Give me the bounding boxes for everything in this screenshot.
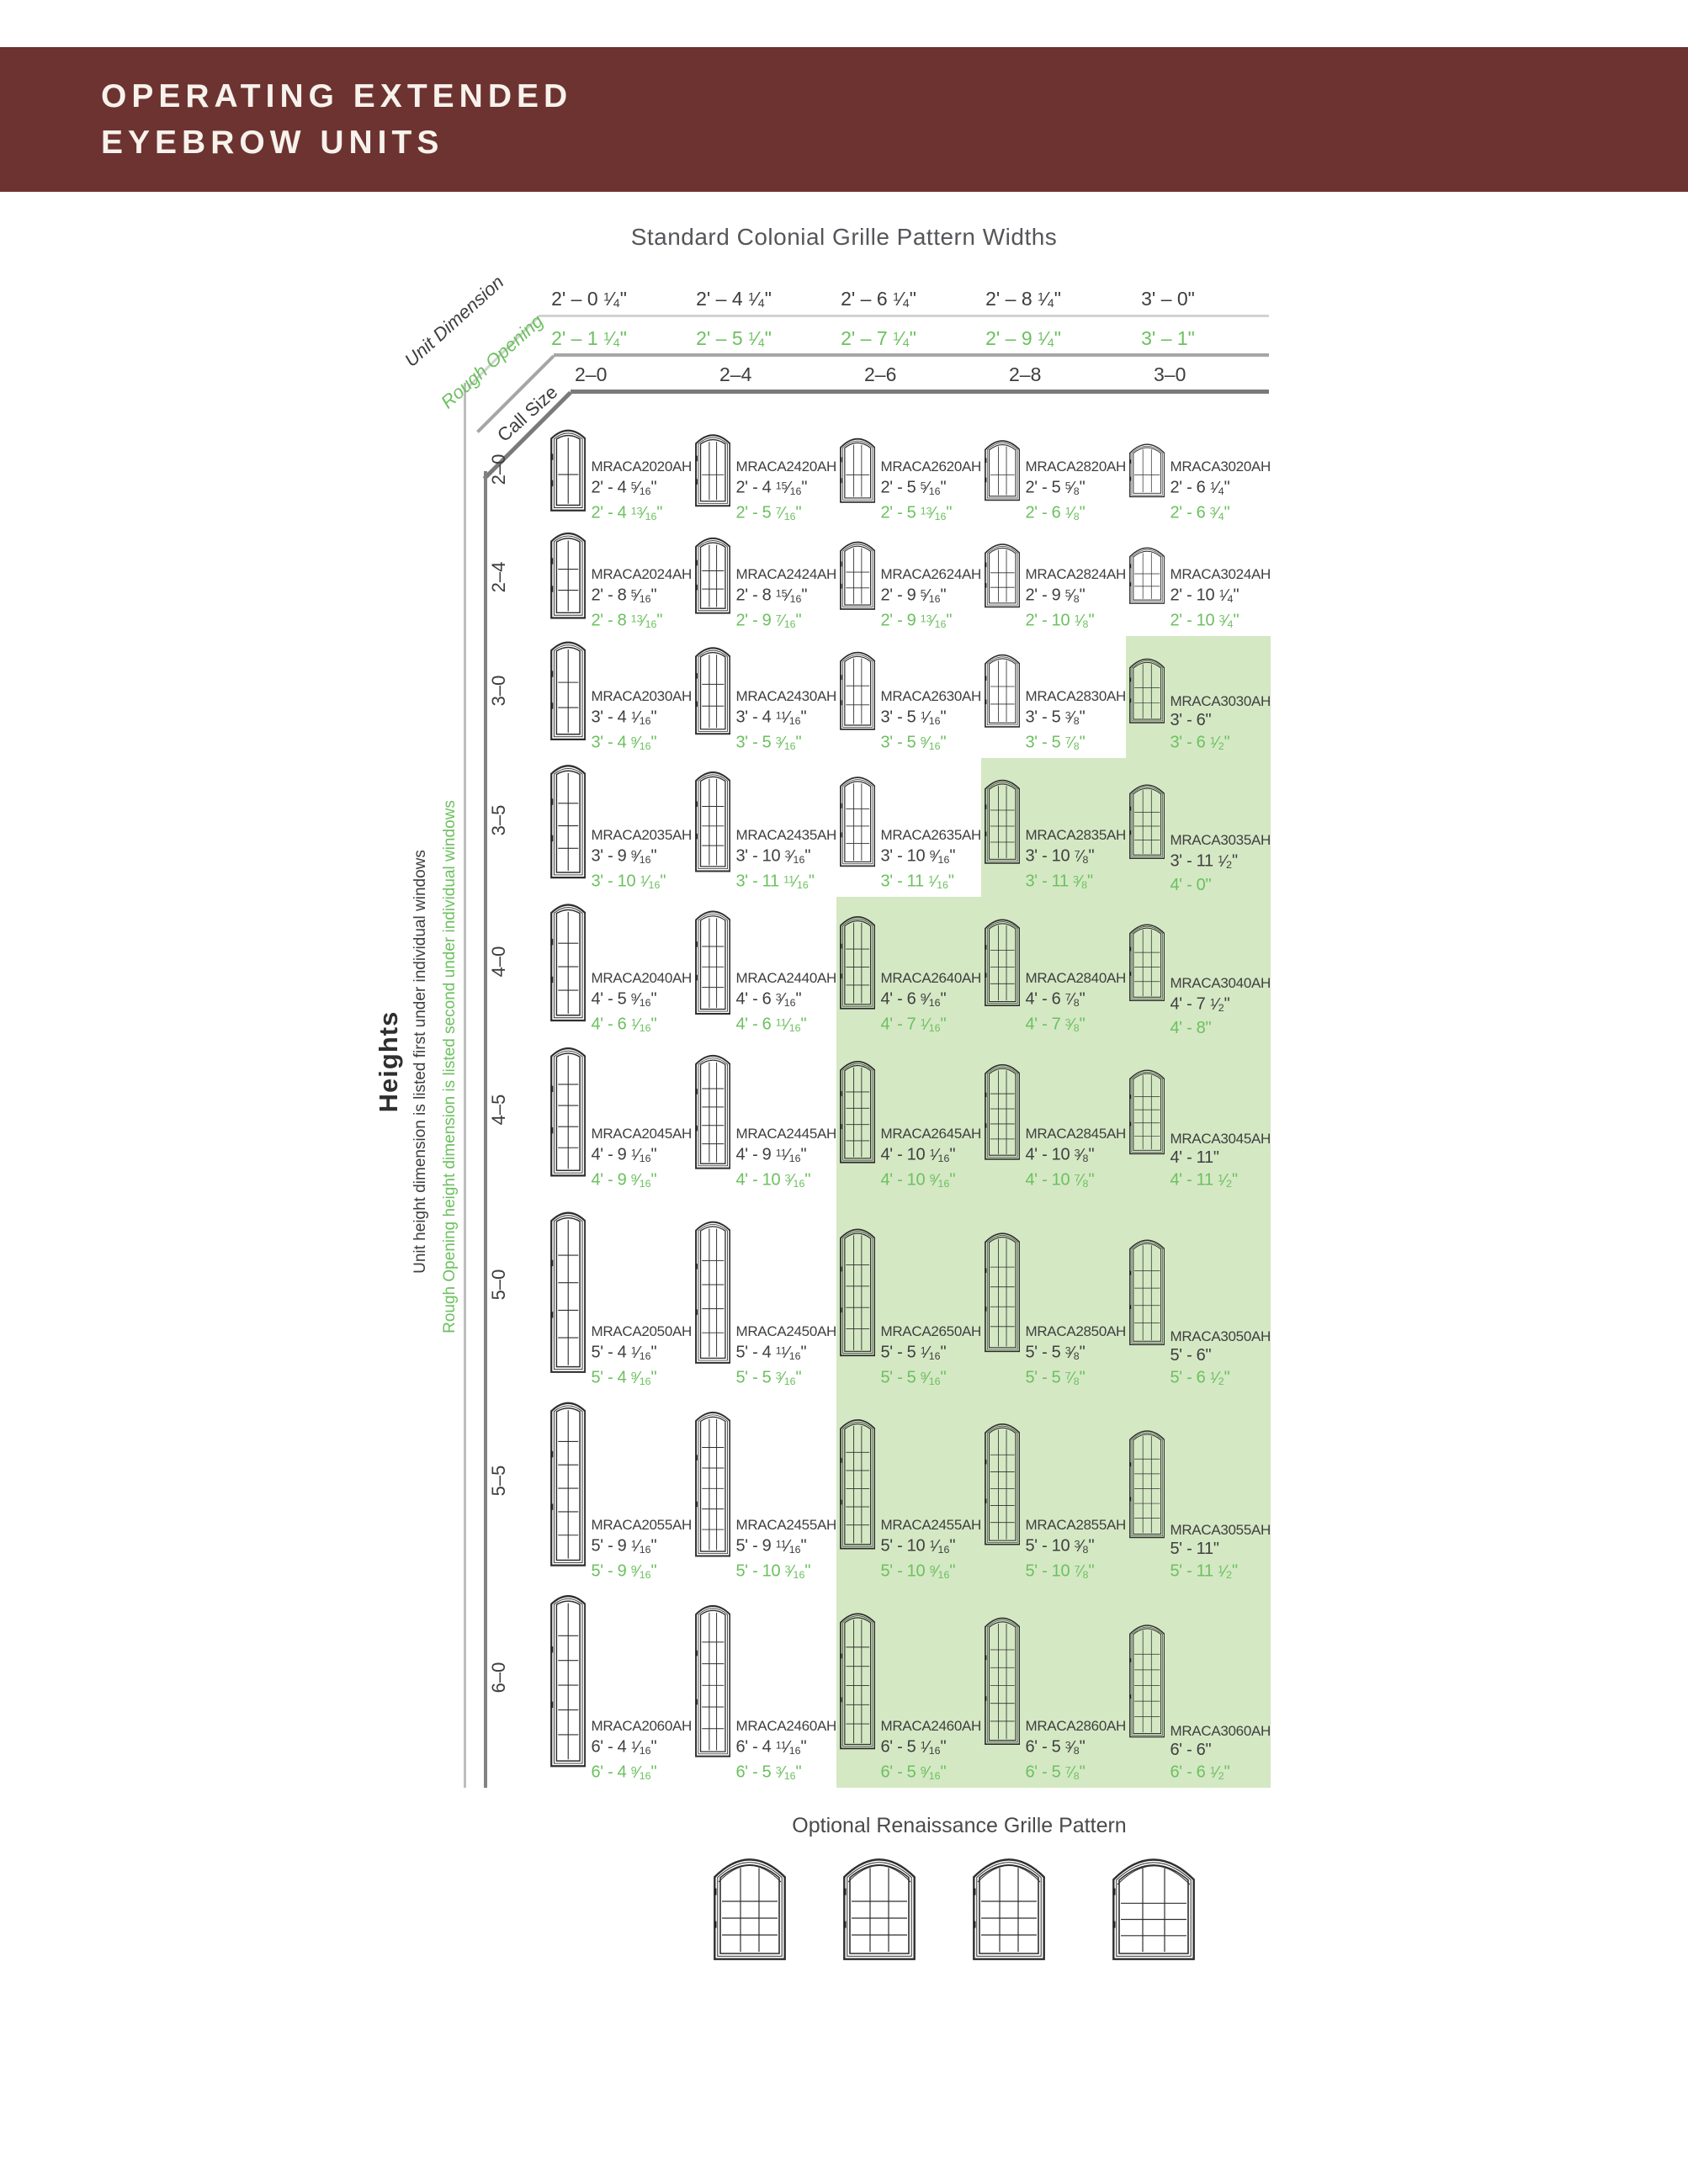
model-number: MRACA2055AH xyxy=(591,1516,692,1534)
table-cell: MRACA2455AH5' - 10 1⁄16"5' - 10 9⁄16" xyxy=(836,1393,981,1587)
unit-dimension: 6' - 5 3⁄8" xyxy=(1025,1735,1126,1761)
model-number: MRACA2020AH xyxy=(591,458,692,475)
unit-dimension: 4' - 7 1⁄2" xyxy=(1170,992,1271,1018)
table-cell: MRACA3040AH4' - 7 1⁄2"4' - 8" xyxy=(1126,897,1271,1040)
window-illustration xyxy=(985,426,1020,515)
table-cell: MRACA2860AH6' - 5 3⁄8"6' - 5 7⁄8" xyxy=(981,1587,1126,1788)
model-number: MRACA3040AH xyxy=(1170,974,1271,992)
unit-dimension: 6' - 4 1⁄16" xyxy=(591,1735,692,1761)
unit-dimension: 3' - 11 1⁄2" xyxy=(1170,849,1271,875)
window-illustration xyxy=(840,1205,875,1380)
table-cell: MRACA2460AH6' - 5 1⁄16"6' - 5 9⁄16" xyxy=(836,1587,981,1788)
unit-dimension: 5' - 5 1⁄16" xyxy=(880,1340,981,1366)
unit-dimension: 5' - 10 1⁄16" xyxy=(880,1534,981,1560)
page-title-line2: EYEBROW UNITS xyxy=(101,119,1688,166)
rough-opening: 6' - 5 9⁄16" xyxy=(880,1760,981,1786)
rough-opening: 6' - 6 1⁄2" xyxy=(1170,1760,1271,1786)
model-number: MRACA2824AH xyxy=(1025,565,1126,583)
table-cell: MRACA2855AH5' - 10 3⁄8"5' - 10 7⁄8" xyxy=(981,1393,1126,1587)
model-number: MRACA2424AH xyxy=(735,565,836,583)
table-cell: MRACA3030AH3' - 6"3' - 6 1⁄2" xyxy=(1126,636,1271,758)
rough-opening: 5' - 6 1⁄2" xyxy=(1170,1365,1271,1392)
height-call-size-value: 4–5 xyxy=(488,1095,510,1126)
table-cell: MRACA2024AH2' - 8 5⁄16"2' - 8 13⁄16" xyxy=(547,528,692,636)
window-illustration xyxy=(973,1858,1045,1960)
cell-text: MRACA2840AH4' - 6 7⁄8"4' - 7 3⁄8" xyxy=(1025,969,1126,1038)
unit-dimension: 5' - 10 3⁄8" xyxy=(1025,1534,1126,1560)
unit-dimension: 4' - 5 9⁄16" xyxy=(591,987,692,1013)
window-illustration xyxy=(550,899,586,1026)
cell-text: MRACA2624AH2' - 9 5⁄16"2' - 9 13⁄16" xyxy=(880,565,981,634)
table-cell: MRACA2060AH6' - 4 1⁄16"6' - 4 9⁄16" xyxy=(547,1587,692,1788)
rough-opening: 5' - 9 9⁄16" xyxy=(591,1559,692,1585)
unit-dimension: 4' - 9 1⁄16" xyxy=(591,1142,692,1169)
table-cell: MRACA2424AH2' - 8 15⁄16"2' - 9 7⁄16" xyxy=(692,528,836,636)
window-illustration xyxy=(840,899,875,1026)
cell-text: MRACA2640AH4' - 6 9⁄16"4' - 7 1⁄16" xyxy=(880,969,981,1038)
unit-dimension: 4' - 10 1⁄16" xyxy=(880,1142,981,1169)
rough-opening: 2' - 9 7⁄16" xyxy=(735,608,836,634)
table-cell: MRACA2020AH2' - 4 5⁄16"2' - 4 13⁄16" xyxy=(547,421,692,528)
table-cell: MRACA3035AH3' - 11 1⁄2"4' - 0" xyxy=(1126,758,1271,897)
width-unit-dimension-value: 2' – 4 1⁄4" xyxy=(671,288,797,310)
unit-dimension: 3' - 6" xyxy=(1170,710,1271,730)
window-illustration xyxy=(985,528,1020,623)
window-illustration xyxy=(843,1858,916,1960)
unit-dimension: 5' - 6" xyxy=(1170,1345,1271,1365)
unit-dimension: 6' - 5 1⁄16" xyxy=(880,1735,981,1761)
unit-dimension: 2' - 5 5⁄16" xyxy=(880,475,981,501)
width-call-size-value: 2–6 xyxy=(864,363,896,386)
table-cell: MRACA2624AH2' - 9 5⁄16"2' - 9 13⁄16" xyxy=(836,528,981,636)
rough-opening: 4' - 7 3⁄8" xyxy=(1025,1012,1126,1038)
unit-dimension: 2' - 8 15⁄16" xyxy=(735,583,836,609)
unit-dimension: 3' - 5 3⁄8" xyxy=(1025,705,1126,731)
model-number: MRACA2845AH xyxy=(1025,1125,1126,1142)
table-cell: MRACA2645AH4' - 10 1⁄16"4' - 10 9⁄16" xyxy=(836,1040,981,1195)
model-number: MRACA3030AH xyxy=(1170,692,1271,710)
footer-title: Optional Renaissance Grille Pattern xyxy=(539,1814,1380,1838)
table-cell: MRACA2430AH3' - 4 11⁄16"3' - 5 3⁄16" xyxy=(692,636,836,758)
table-cell: MRACA2640AH4' - 6 9⁄16"4' - 7 1⁄16" xyxy=(836,897,981,1040)
table-cell: MRACA2824AH2' - 9 5⁄8"2' - 10 1⁄8" xyxy=(981,528,1126,636)
window-illustration xyxy=(840,528,875,623)
rough-opening: 4' - 10 9⁄16" xyxy=(880,1168,981,1194)
window-illustration xyxy=(985,1395,1020,1573)
window-illustration xyxy=(1129,760,1165,883)
table-cell: MRACA3055AH5' - 11"5' - 11 1⁄2" xyxy=(1126,1393,1271,1587)
cell-text: MRACA3055AH5' - 11"5' - 11 1⁄2" xyxy=(1170,1521,1271,1585)
unit-dimension: 4' - 9 11⁄16" xyxy=(735,1142,836,1169)
cell-text: MRACA2855AH5' - 10 3⁄8"5' - 10 7⁄8" xyxy=(1025,1516,1126,1585)
model-number: MRACA2624AH xyxy=(880,565,981,583)
height-call-size-value: 4–0 xyxy=(488,946,510,978)
model-number: MRACA2855AH xyxy=(1025,1516,1126,1534)
model-number: MRACA2820AH xyxy=(1025,458,1126,475)
cell-text: MRACA2060AH6' - 4 1⁄16"6' - 4 9⁄16" xyxy=(591,1717,692,1786)
model-number: MRACA2455AH xyxy=(735,1516,836,1534)
model-number: MRACA2460AH xyxy=(735,1717,836,1735)
unit-height-note: Unit height dimension is listed first un… xyxy=(411,850,430,1274)
table-cell: MRACA2045AH4' - 9 1⁄16"4' - 9 9⁄16" xyxy=(547,1040,692,1195)
table-cell: MRACA3020AH2' - 6 1⁄4"2' - 6 3⁄4" xyxy=(1126,421,1271,528)
rough-opening: 3' - 10 1⁄16" xyxy=(591,869,692,895)
table-cell: MRACA3045AH4' - 11"4' - 11 1⁄2" xyxy=(1126,1040,1271,1195)
height-call-size-value: 6–0 xyxy=(488,1662,510,1694)
window-illustration xyxy=(550,426,586,515)
window-illustration xyxy=(985,899,1020,1026)
height-axis-line-2 xyxy=(484,471,487,1788)
rough-opening: 2' - 9 13⁄16" xyxy=(880,608,981,634)
unit-dimension: 6' - 4 11⁄16" xyxy=(735,1735,836,1761)
height-call-size-value: 2–4 xyxy=(488,562,510,593)
cell-text: MRACA2030AH3' - 4 1⁄16"3' - 4 9⁄16" xyxy=(591,687,692,756)
cell-text: MRACA2635AH3' - 10 9⁄16"3' - 11 1⁄16" xyxy=(880,826,981,895)
model-number: MRACA2440AH xyxy=(735,969,836,987)
rough-opening: 3' - 11 11⁄16" xyxy=(735,869,836,895)
height-call-size-value: 2–0 xyxy=(488,454,510,485)
height-call-size-value: 3–0 xyxy=(488,676,510,707)
width-axis-line-3 xyxy=(571,390,1269,394)
model-number: MRACA2835AH xyxy=(1025,826,1126,844)
rough-opening: 5' - 10 3⁄16" xyxy=(735,1559,836,1585)
rough-opening: 4' - 10 7⁄8" xyxy=(1025,1168,1126,1194)
window-illustration xyxy=(840,1042,875,1182)
cell-text: MRACA3030AH3' - 6"3' - 6 1⁄2" xyxy=(1170,692,1271,756)
table-cell: MRACA2055AH5' - 9 1⁄16"5' - 9 9⁄16" xyxy=(547,1393,692,1587)
table-cell: MRACA2455AH5' - 9 11⁄16"5' - 10 3⁄16" xyxy=(692,1393,836,1587)
rough-opening: 6' - 5 3⁄16" xyxy=(735,1760,836,1786)
cell-text: MRACA2055AH5' - 9 1⁄16"5' - 9 9⁄16" xyxy=(591,1516,692,1585)
rough-opening: 3' - 5 7⁄8" xyxy=(1025,730,1126,756)
table-cell: MRACA2630AH3' - 5 1⁄16"3' - 5 9⁄16" xyxy=(836,636,981,758)
cell-text: MRACA2455AH5' - 10 1⁄16"5' - 10 9⁄16" xyxy=(880,1516,981,1585)
table-cell: MRACA2840AH4' - 6 7⁄8"4' - 7 3⁄8" xyxy=(981,897,1126,1040)
table-cell: MRACA2435AH3' - 10 3⁄16"3' - 11 11⁄16" xyxy=(692,758,836,897)
unit-dimension: 3' - 10 9⁄16" xyxy=(880,844,981,870)
model-number: MRACA2455AH xyxy=(880,1516,981,1534)
window-illustration xyxy=(840,1395,875,1573)
window-illustration xyxy=(1129,1588,1165,1774)
window-illustration xyxy=(840,426,875,515)
model-number: MRACA3055AH xyxy=(1170,1521,1271,1539)
rough-opening: 5' - 5 7⁄8" xyxy=(1025,1365,1126,1392)
window-illustration xyxy=(985,1588,1020,1774)
unit-dimension: 5' - 5 3⁄8" xyxy=(1025,1340,1126,1366)
model-number: MRACA2450AH xyxy=(735,1323,836,1340)
unit-dimension: 4' - 6 7⁄8" xyxy=(1025,987,1126,1013)
model-number: MRACA2435AH xyxy=(735,826,836,844)
cell-text: MRACA2820AH2' - 5 5⁄8"2' - 6 1⁄8" xyxy=(1025,458,1126,527)
rough-opening: 3' - 11 1⁄16" xyxy=(880,869,981,895)
window-illustration xyxy=(1112,1858,1195,1960)
unit-dimension: 2' - 5 5⁄8" xyxy=(1025,475,1126,501)
window-illustration xyxy=(985,1205,1020,1380)
renaissance-window xyxy=(1112,1858,1195,1960)
table-cell: MRACA3060AH6' - 6"6' - 6 1⁄2" xyxy=(1126,1587,1271,1788)
cell-text: MRACA2435AH3' - 10 3⁄16"3' - 11 11⁄16" xyxy=(735,826,836,895)
window-illustration xyxy=(695,426,730,515)
width-rough-opening-value: 2' – 5 1⁄4" xyxy=(671,327,797,350)
cell-text: MRACA2650AH5' - 5 1⁄16"5' - 5 9⁄16" xyxy=(880,1323,981,1392)
table-cell: MRACA2445AH4' - 9 11⁄16"4' - 10 3⁄16" xyxy=(692,1040,836,1195)
table-cell: MRACA2050AH5' - 4 1⁄16"5' - 4 9⁄16" xyxy=(547,1195,692,1393)
unit-dimension: 2' - 9 5⁄16" xyxy=(880,583,981,609)
model-number: MRACA2420AH xyxy=(735,458,836,475)
unit-dimension: 2' - 9 5⁄8" xyxy=(1025,583,1126,609)
rough-opening: 5' - 10 7⁄8" xyxy=(1025,1559,1126,1585)
cell-text: MRACA2455AH5' - 9 11⁄16"5' - 10 3⁄16" xyxy=(735,1516,836,1585)
rough-opening: 5' - 5 9⁄16" xyxy=(880,1365,981,1392)
cell-text: MRACA2050AH5' - 4 1⁄16"5' - 4 9⁄16" xyxy=(591,1323,692,1392)
rough-opening: 3' - 5 9⁄16" xyxy=(880,730,981,756)
rough-opening: 2' - 5 7⁄16" xyxy=(735,501,836,527)
unit-dimension: 4' - 11" xyxy=(1170,1148,1271,1168)
model-number: MRACA3050AH xyxy=(1170,1328,1271,1345)
window-illustration xyxy=(550,637,586,745)
table-cell: MRACA2835AH3' - 10 7⁄8"3' - 11 3⁄8" xyxy=(981,758,1126,897)
model-number: MRACA2830AH xyxy=(1025,687,1126,705)
model-number: MRACA2060AH xyxy=(591,1717,692,1735)
unit-dimension: 2' - 10 1⁄4" xyxy=(1170,583,1271,609)
window-illustration xyxy=(550,1205,586,1380)
table-cell: MRACA2450AH5' - 4 11⁄16"5' - 5 3⁄16" xyxy=(692,1195,836,1393)
cell-text: MRACA3020AH2' - 6 1⁄4"2' - 6 3⁄4" xyxy=(1170,458,1271,527)
cell-text: MRACA2460AH6' - 5 1⁄16"6' - 5 9⁄16" xyxy=(880,1717,981,1786)
unit-dimension: 5' - 11" xyxy=(1170,1539,1271,1559)
rough-opening: 2' - 6 1⁄8" xyxy=(1025,501,1126,527)
unit-dimension: 3' - 10 3⁄16" xyxy=(735,844,836,870)
window-illustration xyxy=(695,1588,730,1774)
rough-opening: 2' - 6 3⁄4" xyxy=(1170,501,1271,527)
table-cell: MRACA2460AH6' - 4 11⁄16"6' - 5 3⁄16" xyxy=(692,1587,836,1788)
width-unit-dimension-value: 2' – 6 1⁄4" xyxy=(815,288,942,310)
rough-opening: 2' - 5 13⁄16" xyxy=(880,501,981,527)
rough-opening: 4' - 6 1⁄16" xyxy=(591,1012,692,1038)
table-cell: MRACA2420AH2' - 4 15⁄16"2' - 5 7⁄16" xyxy=(692,421,836,528)
window-illustration xyxy=(550,1395,586,1573)
unit-dimension: 4' - 6 9⁄16" xyxy=(880,987,981,1013)
rough-opening: 5' - 5 3⁄16" xyxy=(735,1365,836,1392)
table-cell: MRACA3050AH5' - 6"5' - 6 1⁄2" xyxy=(1126,1195,1271,1393)
renaissance-window xyxy=(973,1858,1045,1960)
rough-opening: 6' - 4 9⁄16" xyxy=(591,1760,692,1786)
unit-dimension: 4' - 10 3⁄8" xyxy=(1025,1142,1126,1169)
table-cell: MRACA2040AH4' - 5 9⁄16"4' - 6 1⁄16" xyxy=(547,897,692,1040)
rough-opening: 2' - 4 13⁄16" xyxy=(591,501,692,527)
rough-opening: 5' - 4 9⁄16" xyxy=(591,1365,692,1392)
unit-dimension: 6' - 6" xyxy=(1170,1740,1271,1760)
window-illustration xyxy=(1129,1205,1165,1380)
cell-text: MRACA2830AH3' - 5 3⁄8"3' - 5 7⁄8" xyxy=(1025,687,1126,756)
width-unit-dimension-value: 2' – 0 1⁄4" xyxy=(526,288,652,310)
model-number: MRACA2640AH xyxy=(880,969,981,987)
window-illustration xyxy=(550,1042,586,1182)
window-illustration xyxy=(840,760,875,883)
table-cell: MRACA2850AH5' - 5 3⁄8"5' - 5 7⁄8" xyxy=(981,1195,1126,1393)
window-illustration xyxy=(1129,899,1165,1026)
width-unit-dimension-value: 3' – 0" xyxy=(1105,288,1231,310)
table-cell: MRACA2830AH3' - 5 3⁄8"3' - 5 7⁄8" xyxy=(981,636,1126,758)
width-rough-opening-value: 2' – 9 1⁄4" xyxy=(960,327,1086,350)
rough-opening: 4' - 9 9⁄16" xyxy=(591,1168,692,1194)
unit-dimension: 2' - 4 15⁄16" xyxy=(735,475,836,501)
window-illustration xyxy=(840,1588,875,1774)
height-call-size-value: 3–5 xyxy=(488,805,510,836)
model-number: MRACA2045AH xyxy=(591,1125,692,1142)
model-number: MRACA2645AH xyxy=(880,1125,981,1142)
model-number: MRACA2630AH xyxy=(880,687,981,705)
width-call-size-value: 2–4 xyxy=(719,363,751,386)
unit-dimension: 5' - 4 11⁄16" xyxy=(735,1340,836,1366)
model-number: MRACA2860AH xyxy=(1025,1717,1126,1735)
cell-text: MRACA2630AH3' - 5 1⁄16"3' - 5 9⁄16" xyxy=(880,687,981,756)
rough-opening: 3' - 4 9⁄16" xyxy=(591,730,692,756)
table-cell: MRACA2440AH4' - 6 3⁄16"4' - 6 11⁄16" xyxy=(692,897,836,1040)
table-cell: MRACA2035AH3' - 9 9⁄16"3' - 10 1⁄16" xyxy=(547,758,692,897)
rough-opening: 5' - 11 1⁄2" xyxy=(1170,1559,1271,1585)
cell-text: MRACA2045AH4' - 9 1⁄16"4' - 9 9⁄16" xyxy=(591,1125,692,1194)
rough-opening: 2' - 10 1⁄8" xyxy=(1025,608,1126,634)
window-illustration xyxy=(1129,528,1165,623)
model-number: MRACA3024AH xyxy=(1170,565,1271,583)
renaissance-window xyxy=(843,1858,916,1960)
cell-text: MRACA3060AH6' - 6"6' - 6 1⁄2" xyxy=(1170,1722,1271,1786)
window-illustration xyxy=(985,1042,1020,1182)
cell-text: MRACA2020AH2' - 4 5⁄16"2' - 4 13⁄16" xyxy=(591,458,692,527)
rough-opening: 4' - 7 1⁄16" xyxy=(880,1012,981,1038)
cell-text: MRACA2424AH2' - 8 15⁄16"2' - 9 7⁄16" xyxy=(735,565,836,634)
unit-dimension: 2' - 8 5⁄16" xyxy=(591,583,692,609)
rough-opening: 4' - 8" xyxy=(1170,1018,1271,1038)
cell-text: MRACA2430AH3' - 4 11⁄16"3' - 5 3⁄16" xyxy=(735,687,836,756)
table-cell: MRACA2030AH3' - 4 1⁄16"3' - 4 9⁄16" xyxy=(547,636,692,758)
cell-text: MRACA2835AH3' - 10 7⁄8"3' - 11 3⁄8" xyxy=(1025,826,1126,895)
heights-axis-title: Heights xyxy=(374,1011,404,1113)
window-illustration xyxy=(1129,1042,1165,1182)
window-illustration xyxy=(695,899,730,1026)
unit-dimension: 3' - 4 1⁄16" xyxy=(591,705,692,731)
width-unit-dimension-value: 2' – 8 1⁄4" xyxy=(960,288,1086,310)
cell-text: MRACA2860AH6' - 5 3⁄8"6' - 5 7⁄8" xyxy=(1025,1717,1126,1786)
rough-opening: 3' - 11 3⁄8" xyxy=(1025,869,1126,895)
model-number: MRACA2650AH xyxy=(880,1323,981,1340)
width-rough-opening-value: 3' – 1" xyxy=(1105,327,1231,350)
unit-dimension: 2' - 4 5⁄16" xyxy=(591,475,692,501)
window-illustration xyxy=(550,760,586,883)
window-illustration xyxy=(985,760,1020,883)
window-illustration xyxy=(695,1395,730,1573)
table-cell: MRACA2650AH5' - 5 1⁄16"5' - 5 9⁄16" xyxy=(836,1195,981,1393)
rough-opening: 5' - 10 9⁄16" xyxy=(880,1559,981,1585)
rough-opening: 3' - 6 1⁄2" xyxy=(1170,730,1271,756)
window-illustration xyxy=(695,1205,730,1380)
unit-dimension: 3' - 9 9⁄16" xyxy=(591,844,692,870)
width-rough-opening-value: 2' – 7 1⁄4" xyxy=(815,327,942,350)
window-illustration xyxy=(550,528,586,623)
cell-text: MRACA2824AH2' - 9 5⁄8"2' - 10 1⁄8" xyxy=(1025,565,1126,634)
model-number: MRACA2850AH xyxy=(1025,1323,1126,1340)
rough-opening: 2' - 10 3⁄4" xyxy=(1170,608,1271,634)
page-header: OPERATING EXTENDED EYEBROW UNITS xyxy=(0,47,1688,192)
unit-dimension: 3' - 5 1⁄16" xyxy=(880,705,981,731)
renaissance-window xyxy=(714,1858,786,1960)
window-illustration xyxy=(695,528,730,623)
model-number: MRACA3020AH xyxy=(1170,458,1271,475)
rough-opening: 3' - 5 3⁄16" xyxy=(735,730,836,756)
cell-text: MRACA3040AH4' - 7 1⁄2"4' - 8" xyxy=(1170,974,1271,1038)
cell-text: MRACA2850AH5' - 5 3⁄8"5' - 5 7⁄8" xyxy=(1025,1323,1126,1392)
cell-text: MRACA2645AH4' - 10 1⁄16"4' - 10 9⁄16" xyxy=(880,1125,981,1194)
rough-opening: 4' - 0" xyxy=(1170,875,1271,895)
model-number: MRACA3060AH xyxy=(1170,1722,1271,1740)
cell-text: MRACA2845AH4' - 10 3⁄8"4' - 10 7⁄8" xyxy=(1025,1125,1126,1194)
cell-text: MRACA2440AH4' - 6 3⁄16"4' - 6 11⁄16" xyxy=(735,969,836,1038)
cell-text: MRACA3050AH5' - 6"5' - 6 1⁄2" xyxy=(1170,1328,1271,1392)
cell-text: MRACA2450AH5' - 4 11⁄16"5' - 5 3⁄16" xyxy=(735,1323,836,1392)
cell-text: MRACA2420AH2' - 4 15⁄16"2' - 5 7⁄16" xyxy=(735,458,836,527)
window-illustration xyxy=(550,1588,586,1774)
table-cell: MRACA3024AH2' - 10 1⁄4"2' - 10 3⁄4" xyxy=(1126,528,1271,636)
height-call-size-value: 5–5 xyxy=(488,1466,510,1497)
cell-text: MRACA2024AH2' - 8 5⁄16"2' - 8 13⁄16" xyxy=(591,565,692,634)
table-cell: MRACA2635AH3' - 10 9⁄16"3' - 11 1⁄16" xyxy=(836,758,981,897)
rough-opening: 2' - 8 13⁄16" xyxy=(591,608,692,634)
cell-text: MRACA2040AH4' - 5 9⁄16"4' - 6 1⁄16" xyxy=(591,969,692,1038)
cell-text: MRACA3024AH2' - 10 1⁄4"2' - 10 3⁄4" xyxy=(1170,565,1271,634)
cell-text: MRACA2035AH3' - 9 9⁄16"3' - 10 1⁄16" xyxy=(591,826,692,895)
model-number: MRACA2040AH xyxy=(591,969,692,987)
unit-dimension: 2' - 6 1⁄4" xyxy=(1170,475,1271,501)
rough-opening: 4' - 11 1⁄2" xyxy=(1170,1168,1271,1194)
height-axis-line-1 xyxy=(464,383,466,1788)
model-number: MRACA3035AH xyxy=(1170,831,1271,849)
cell-text: MRACA3035AH3' - 11 1⁄2"4' - 0" xyxy=(1170,831,1271,895)
section-title: Standard Colonial Grille Pattern Widths xyxy=(0,224,1688,251)
height-call-size-value: 5–0 xyxy=(488,1270,510,1301)
width-call-size-value: 2–0 xyxy=(575,363,607,386)
model-number: MRACA2445AH xyxy=(735,1125,836,1142)
window-illustration xyxy=(695,760,730,883)
window-illustration xyxy=(985,637,1020,745)
unit-dimension: 3' - 10 7⁄8" xyxy=(1025,844,1126,870)
model-number: MRACA2024AH xyxy=(591,565,692,583)
unit-dimension: 5' - 9 11⁄16" xyxy=(735,1534,836,1560)
model-number: MRACA2635AH xyxy=(880,826,981,844)
rough-opening: 4' - 10 3⁄16" xyxy=(735,1168,836,1194)
model-number: MRACA2620AH xyxy=(880,458,981,475)
table-cell: MRACA2845AH4' - 10 3⁄8"4' - 10 7⁄8" xyxy=(981,1040,1126,1195)
unit-dimension: 3' - 4 11⁄16" xyxy=(735,705,836,731)
cell-text: MRACA3045AH4' - 11"4' - 11 1⁄2" xyxy=(1170,1130,1271,1194)
cell-text: MRACA2620AH2' - 5 5⁄16"2' - 5 13⁄16" xyxy=(880,458,981,527)
model-number: MRACA3045AH xyxy=(1170,1130,1271,1148)
window-illustration xyxy=(714,1858,786,1960)
window-illustration xyxy=(1129,1395,1165,1573)
cell-text: MRACA2445AH4' - 9 11⁄16"4' - 10 3⁄16" xyxy=(735,1125,836,1194)
window-illustration xyxy=(840,637,875,745)
unit-dimension: 5' - 4 1⁄16" xyxy=(591,1340,692,1366)
model-number: MRACA2460AH xyxy=(880,1717,981,1735)
window-illustration xyxy=(1129,426,1165,515)
width-call-size-value: 3–0 xyxy=(1154,363,1186,386)
model-number: MRACA2030AH xyxy=(591,687,692,705)
width-call-size-value: 2–8 xyxy=(1009,363,1041,386)
model-number: MRACA2035AH xyxy=(591,826,692,844)
unit-dimension: 5' - 9 1⁄16" xyxy=(591,1534,692,1560)
page-title-line1: OPERATING EXTENDED xyxy=(101,73,1688,119)
width-axis-line-1 xyxy=(539,315,1269,317)
